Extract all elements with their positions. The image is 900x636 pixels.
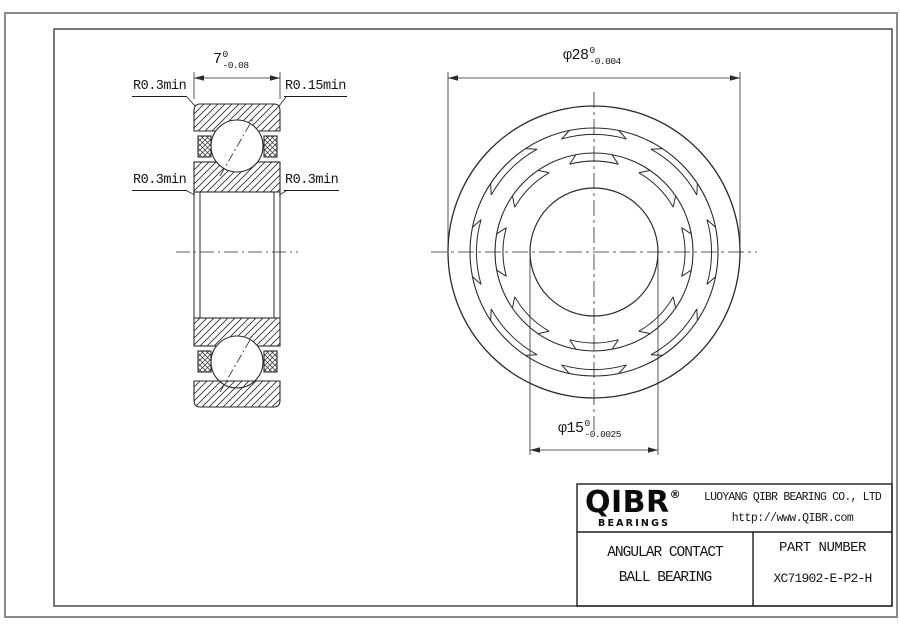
arrowhead	[648, 447, 658, 452]
outer-border	[5, 13, 897, 617]
dim-od-text: φ28 0 -0.004	[563, 48, 621, 70]
arrowhead	[270, 75, 280, 80]
cage-bottom-left	[198, 351, 211, 372]
dim-bore-value: φ15	[558, 421, 584, 438]
product-type-line2: BALL BEARING	[577, 570, 753, 586]
label-fillet-top-right: R0.15min	[284, 80, 347, 97]
dim-width-text: 7 0 -0.08	[213, 52, 249, 74]
cage-top-left	[198, 136, 211, 157]
front-view-centerlines	[431, 92, 757, 431]
dim-bore-text: φ15 0 -0.0025	[558, 421, 621, 443]
section-view	[194, 104, 280, 407]
part-number-label: PART NUMBER	[753, 540, 892, 556]
dim-width-value: 7	[213, 52, 222, 69]
arrowhead	[730, 75, 740, 80]
arrowhead	[194, 75, 204, 80]
drawing-sheet: 7 0 -0.08 R0.3min R0.15min R0.3min R0.3m…	[0, 0, 900, 636]
dim-od-value: φ28	[563, 48, 589, 65]
label-fillet-mid-right: R0.3min	[284, 174, 339, 191]
qibr-logo: QIBR®	[585, 488, 681, 518]
arrowhead	[530, 447, 540, 452]
dim-bore-tol-lower: -0.0025	[585, 430, 621, 441]
dim-od-tol-lower: -0.004	[590, 57, 621, 68]
dim-width-tol-lower: -0.08	[223, 61, 249, 72]
outer-ring-bottom-section	[194, 381, 280, 407]
label-fillet-top-left: R0.3min	[132, 80, 187, 97]
cage-bottom-right	[264, 351, 277, 372]
company-website: http://www.QIBR.com	[695, 512, 890, 525]
arrowhead	[448, 75, 458, 80]
qibr-logo-text: QIBR	[585, 485, 670, 520]
label-fillet-mid-left: R0.3min	[132, 174, 187, 191]
product-type-line1: ANGULAR CONTACT	[577, 545, 753, 561]
dim-width-lines	[194, 72, 280, 99]
company-name: LUOYANG QIBR BEARING CO., LTD	[695, 491, 890, 504]
part-number-value: XC71902-E-P2-H	[753, 571, 892, 586]
qibr-logo-subtext: BEARINGS	[598, 518, 670, 529]
cage-top-right	[264, 136, 277, 157]
registered-trademark-icon: ®	[670, 488, 681, 501]
